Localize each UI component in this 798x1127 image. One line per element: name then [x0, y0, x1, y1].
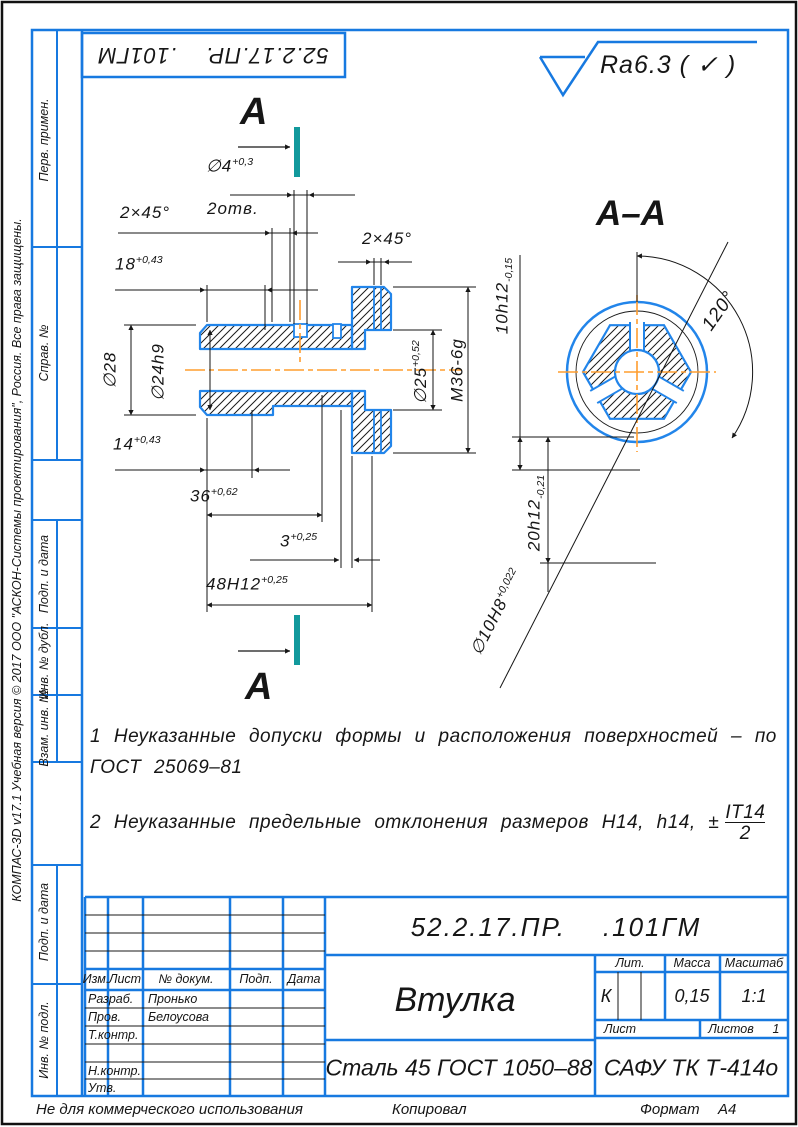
dim-10h12: 10h12-0,15: [494, 258, 515, 334]
sidebar-cell-podp-data-2: Подп. и дата: [38, 883, 51, 961]
row-name: Белоусова: [148, 1011, 209, 1024]
col-doc: № докум.: [158, 973, 213, 986]
dim-20h12: 20h12-0,21: [526, 475, 547, 551]
sidebar-cell-sprav-no: Справ. №: [38, 325, 51, 382]
dim-phi28: ∅28: [102, 352, 119, 389]
sheets-value: 1: [773, 1023, 780, 1036]
stamp-doc-number: 52.2.17.ПР. .101ГМ: [97, 44, 328, 66]
dim-holes: 2отв.: [207, 200, 259, 217]
sidebar-cell-inv-dubl: Инв. № дубл.: [38, 623, 51, 700]
sidebar-cell-podp-data-1: Подп. и дата: [38, 535, 51, 613]
dim-chamfer-right: 2×45°: [362, 230, 412, 247]
row-name: Пронько: [148, 993, 197, 1006]
fraction-denominator: 2: [725, 822, 765, 843]
footer-copied-by: Копировал: [392, 1102, 467, 1117]
footer-format-label: Формат: [640, 1102, 700, 1117]
sheets-label: Листов: [708, 1023, 754, 1036]
scale-header: Масштаб: [725, 957, 783, 970]
row-role: Т.контр.: [88, 1029, 138, 1042]
sheet-label: Лист: [604, 1023, 636, 1036]
dim-36: 36+0,62: [190, 487, 238, 505]
cut-label-bottom: А: [245, 668, 272, 706]
sidebar-cell-perv-primen: Перв. примен.: [38, 98, 51, 181]
dim-18: 18+0,43: [115, 255, 163, 273]
titleblock-material: Сталь 45 ГОСТ 1050–88: [326, 1057, 593, 1080]
note-line-2: ГОСТ 25069–81: [90, 758, 243, 777]
mass-value: 0,15: [674, 987, 709, 1005]
dim-thread: M36-6g: [449, 338, 466, 402]
note-line-1: 1 Неуказанные допуски формы и расположен…: [90, 727, 777, 746]
row-role: Пров.: [88, 1011, 121, 1024]
surface-finish-label: Ra6.3 ( ✓ ): [600, 53, 736, 78]
footer-non-commercial: Не для коммерческого использования: [36, 1102, 303, 1117]
scale-value: 1:1: [741, 987, 766, 1005]
note-line-3: 2 Неуказанные предельные отклонения разм…: [90, 803, 765, 843]
mass-header: Масса: [674, 957, 711, 970]
row-role: Разраб.: [88, 993, 133, 1006]
cut-label-top: А: [240, 93, 267, 131]
titleblock-doc-number: 52.2.17.ПР. .101ГМ: [411, 914, 702, 940]
titleblock-organization: САФУ ТК Т-414о: [604, 1057, 778, 1080]
col-izm: Изм.: [83, 973, 110, 986]
dim-3: 3+0,25: [280, 532, 317, 550]
dim-14: 14+0,43: [113, 435, 161, 453]
dim-phi24: ∅24h9: [150, 343, 167, 401]
dim-48: 48H12+0,25: [206, 575, 288, 593]
col-podp: Подп.: [239, 973, 272, 986]
col-list: Лист: [109, 973, 141, 986]
sidebar-cell-vzam-inv: Взам. инв. №: [38, 689, 51, 766]
compas-copyright: КОМПАС-3D v17.1 Учебная версия © 2017 ОО…: [11, 218, 24, 901]
col-data: Дата: [288, 973, 321, 986]
fraction-numerator: IT14: [725, 802, 765, 823]
footer-format-value: А4: [718, 1102, 736, 1117]
drawing-sheet: 52.2.17.ПР. .101ГМ Ra6.3 ( ✓ ) А А А–А ∅…: [0, 0, 798, 1127]
sidebar-cell-inv-podl: Инв. № подл.: [38, 1001, 51, 1079]
lit-value: К: [601, 987, 612, 1005]
titleblock-part-name: Втулка: [394, 983, 515, 1017]
dim-chamfer-left: 2×45°: [120, 204, 170, 221]
dim-phi4: ∅4+0,3: [206, 157, 253, 175]
row-role: Н.контр.: [88, 1065, 141, 1078]
row-role: Утв.: [88, 1082, 116, 1095]
section-title: А–А: [596, 196, 666, 231]
lit-header: Лит.: [615, 957, 644, 970]
dim-phi25: ∅25+0,52: [411, 340, 429, 403]
